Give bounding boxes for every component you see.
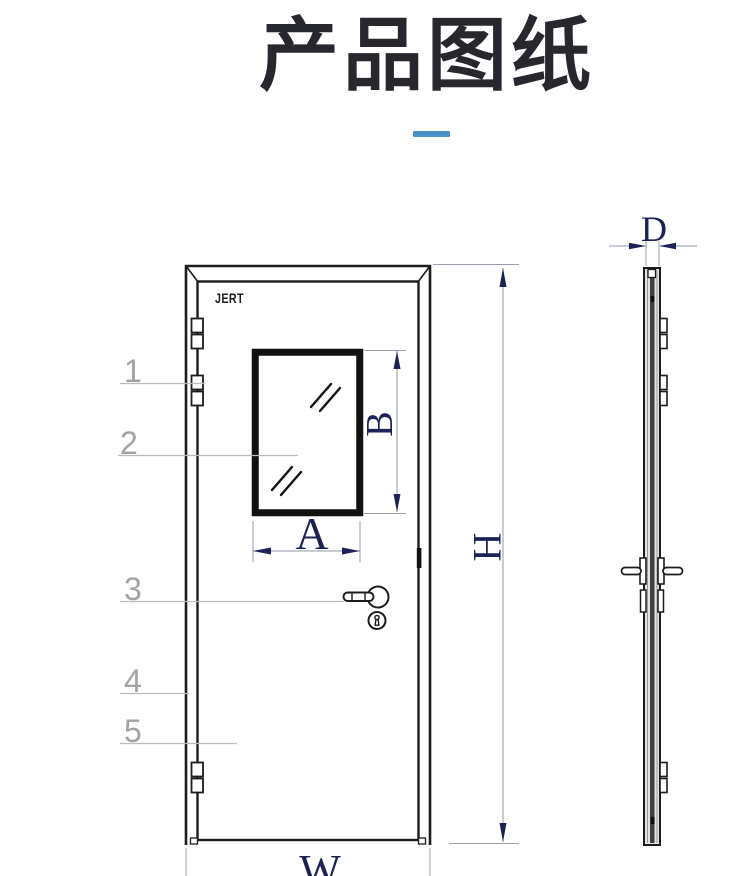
dim-label-H: H	[465, 533, 510, 562]
profile-core	[650, 270, 655, 843]
callout-4: 4	[120, 663, 189, 699]
dim-label-D: D	[641, 209, 667, 249]
dim-label-B: B	[359, 411, 401, 436]
profile-top-notch	[648, 270, 656, 278]
dimension-door-width: W	[186, 846, 430, 876]
handle-lever	[344, 593, 374, 602]
dim-label-W: W	[299, 846, 341, 876]
frame-mitre-left	[187, 267, 199, 283]
frame-mitre-right	[418, 267, 430, 283]
frame-foot-right	[419, 838, 426, 844]
dimension-door-thickness: D	[609, 209, 697, 266]
escutcheon-right	[658, 590, 664, 612]
vision-window	[255, 352, 360, 513]
latch-plate	[417, 548, 422, 568]
product-drawing: JERT	[0, 0, 752, 876]
callout-1: 1	[120, 353, 205, 389]
handle-lever-right	[663, 568, 683, 575]
window-frame	[255, 352, 360, 513]
dim-label-A: A	[295, 508, 328, 559]
escutcheon-left	[641, 590, 647, 612]
frame-foot-left	[191, 838, 198, 844]
profile-mark-top	[651, 296, 655, 302]
side-hinges	[660, 319, 667, 793]
dimension-door-height: H	[433, 265, 519, 844]
profile-mark-bottom	[651, 817, 655, 824]
key-cylinder	[369, 612, 386, 629]
brand-label: JERT	[215, 290, 244, 306]
page: 产品图纸 JERT	[0, 0, 752, 876]
handle-lever-left	[622, 568, 642, 575]
door-side-view	[622, 268, 683, 845]
